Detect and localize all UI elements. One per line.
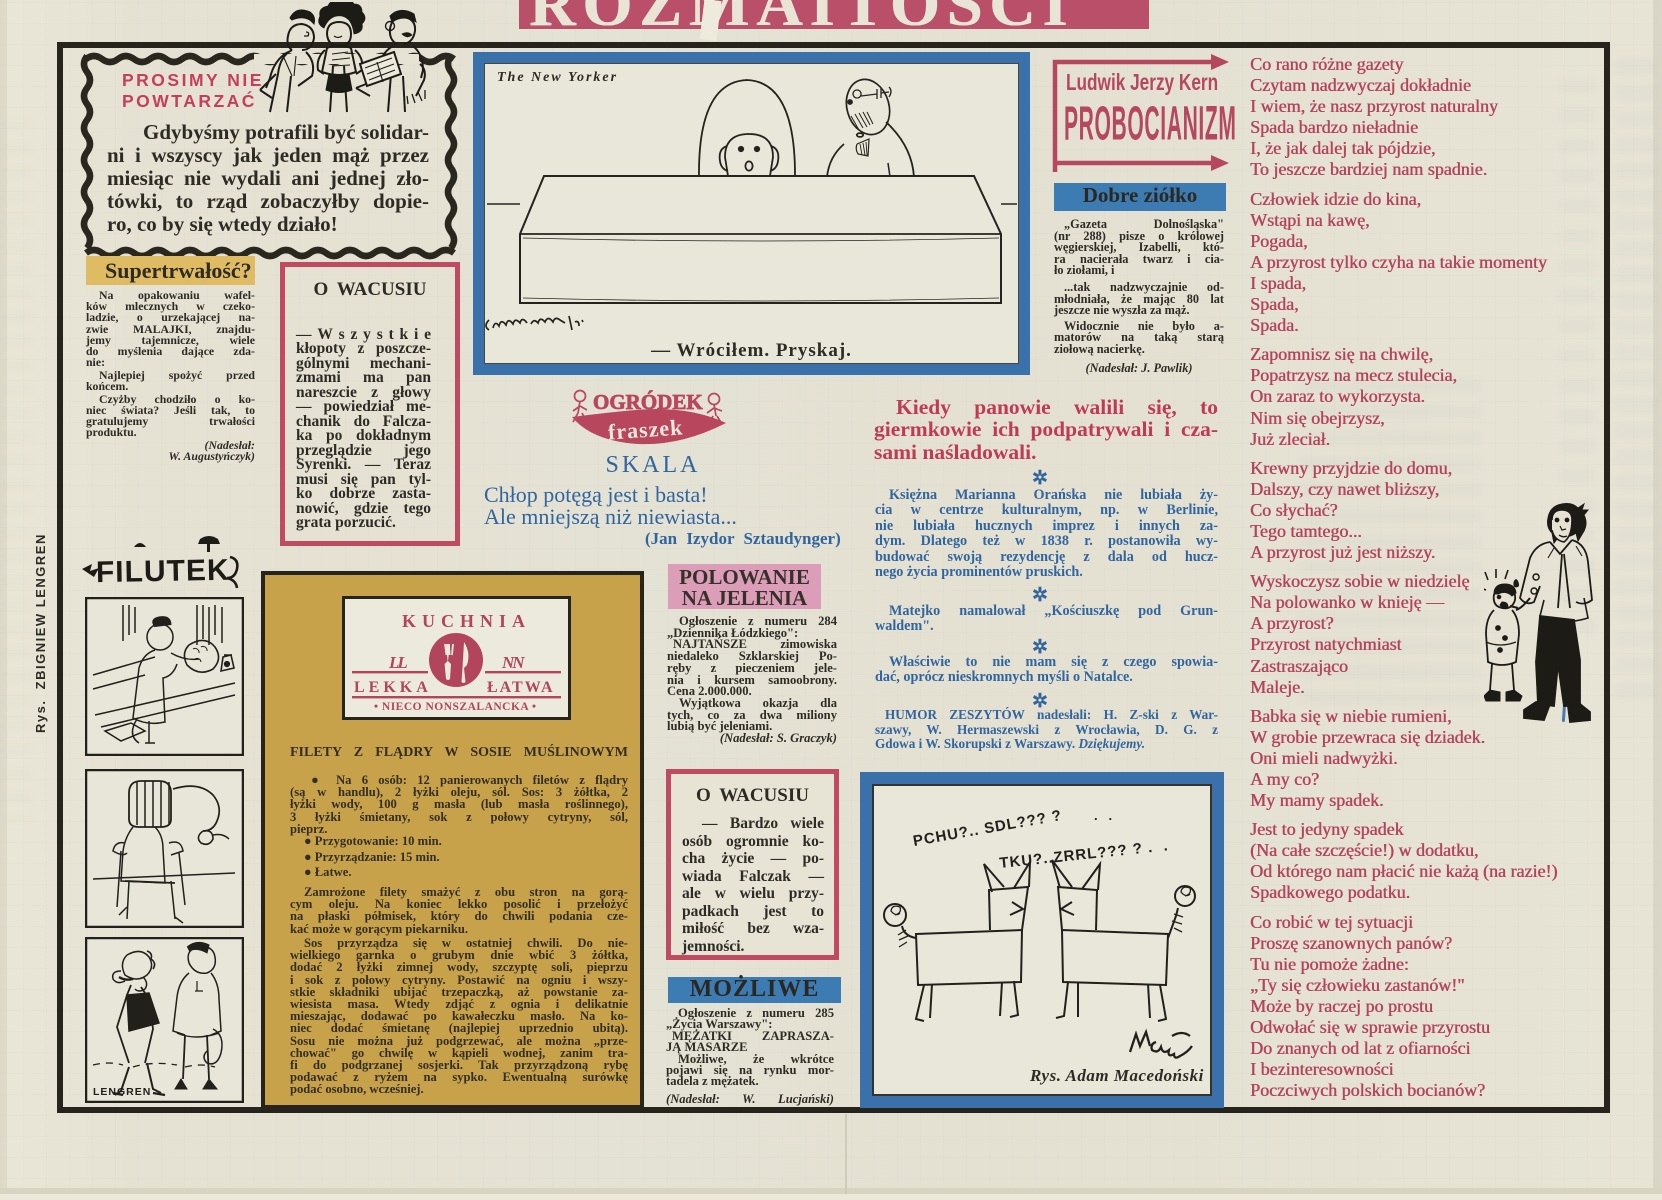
svg-text:OGRÓDEK: OGRÓDEK: [593, 390, 703, 414]
svg-text:NN: NN: [501, 653, 525, 672]
svg-text:fraszek: fraszek: [607, 414, 684, 444]
svg-text:TKU?..ZRRL??? ? . .: TKU?..ZRRL??? ? . .: [999, 837, 1170, 872]
svg-text:LENGREN: LENGREN: [93, 1086, 151, 1098]
svg-text:. .: . .: [1094, 808, 1112, 823]
svg-text:LEKKA: LEKKA: [354, 679, 432, 696]
svg-text:PCHU?.. SDL??? ?: PCHU?.. SDL??? ?: [912, 807, 1064, 850]
svg-text:• NIECO NONSZALANCKA •: • NIECO NONSZALANCKA •: [374, 701, 537, 713]
svg-text:ŁATWA: ŁATWA: [487, 679, 555, 696]
svg-text:FILUTEK: FILUTEK: [96, 554, 230, 589]
svg-text:KUCHNIA: KUCHNIA: [402, 611, 531, 631]
svg-text:LL: LL: [388, 653, 407, 672]
